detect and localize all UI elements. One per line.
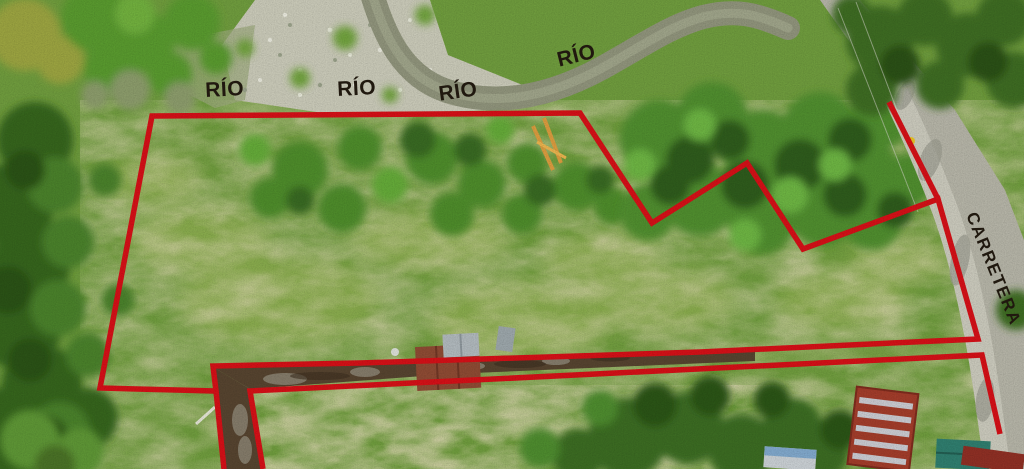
photo-grain [0,0,1024,469]
aerial-photo: RÍORÍORÍORÍOCARRETERA [0,0,1024,469]
scene-svg: RÍORÍORÍORÍOCARRETERA [0,0,1024,469]
